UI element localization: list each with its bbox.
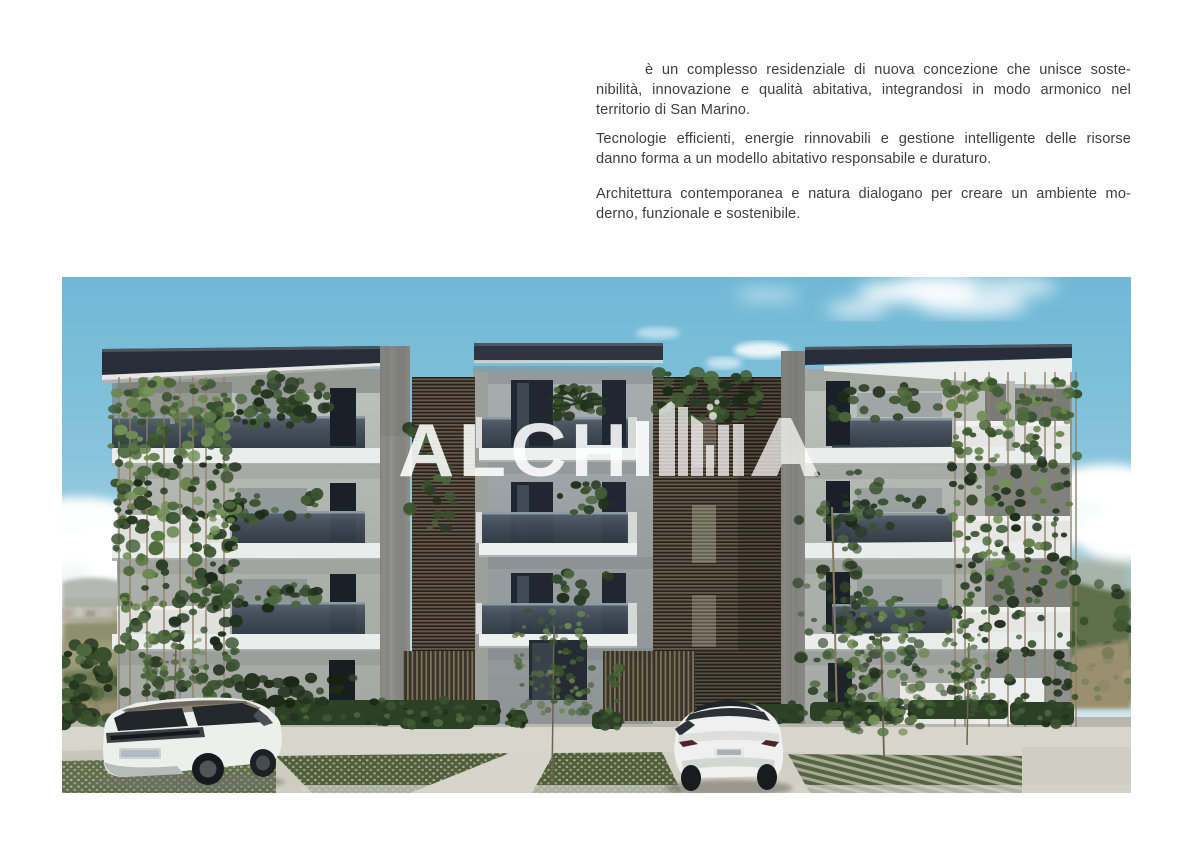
svg-text:ALCH: ALCH — [398, 409, 631, 492]
